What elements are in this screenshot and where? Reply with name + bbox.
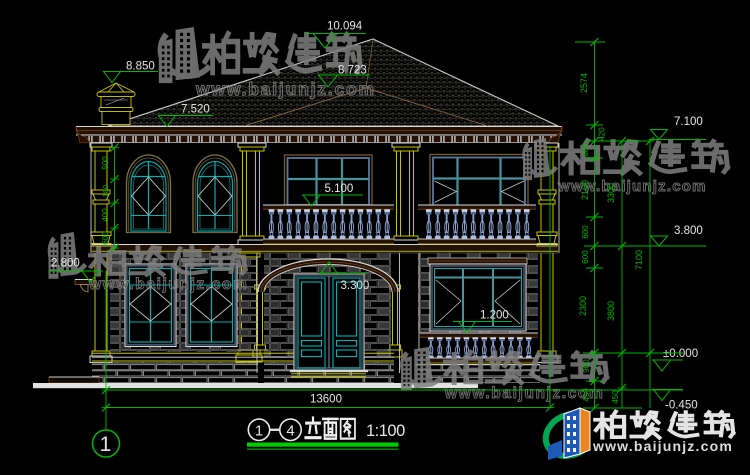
svg-text:3800: 3800 (606, 301, 616, 321)
svg-text:2.800: 2.800 (51, 258, 80, 270)
svg-text:8.850: 8.850 (126, 61, 155, 73)
svg-text:400: 400 (101, 208, 110, 222)
svg-text:4: 4 (286, 422, 294, 439)
svg-text:600: 600 (581, 225, 590, 239)
svg-text:www.baijunjz.com: www.baijunjz.com (592, 438, 733, 454)
svg-text:2300: 2300 (578, 296, 588, 316)
svg-text:600: 600 (581, 250, 590, 264)
svg-text:180: 180 (101, 185, 110, 198)
svg-text:-0.450: -0.450 (665, 400, 698, 412)
svg-text:8.723: 8.723 (338, 65, 367, 77)
svg-text:7100: 7100 (634, 250, 644, 270)
svg-text:13600: 13600 (310, 394, 342, 406)
svg-text:7.100: 7.100 (674, 116, 703, 128)
svg-text:2574: 2574 (579, 73, 589, 93)
svg-text:www.baijunjz.com: www.baijunjz.com (444, 385, 604, 402)
svg-text:7.520: 7.520 (181, 104, 210, 116)
svg-text:2100: 2100 (580, 180, 590, 200)
svg-text:1.200: 1.200 (480, 310, 509, 322)
svg-text:±0.000: ±0.000 (663, 348, 698, 360)
svg-text:3.800: 3.800 (674, 225, 703, 237)
svg-text:1: 1 (100, 433, 112, 456)
svg-text:www.baijunjz.com: www.baijunjz.com (88, 276, 248, 293)
svg-text:3.300: 3.300 (341, 280, 370, 292)
svg-text:450: 450 (611, 390, 620, 404)
svg-text:600: 600 (101, 231, 110, 245)
svg-text:1:100: 1:100 (366, 422, 405, 440)
svg-text:10.094: 10.094 (327, 21, 363, 33)
svg-text:1: 1 (255, 422, 263, 439)
svg-text:5.100: 5.100 (325, 183, 354, 195)
svg-text:900: 900 (582, 359, 591, 373)
svg-text:600: 600 (581, 143, 590, 157)
svg-text:www.baijunjz.com: www.baijunjz.com (195, 79, 376, 99)
svg-text:420: 420 (598, 127, 607, 141)
svg-text:3300: 3300 (606, 183, 616, 203)
svg-text:500: 500 (101, 156, 110, 170)
